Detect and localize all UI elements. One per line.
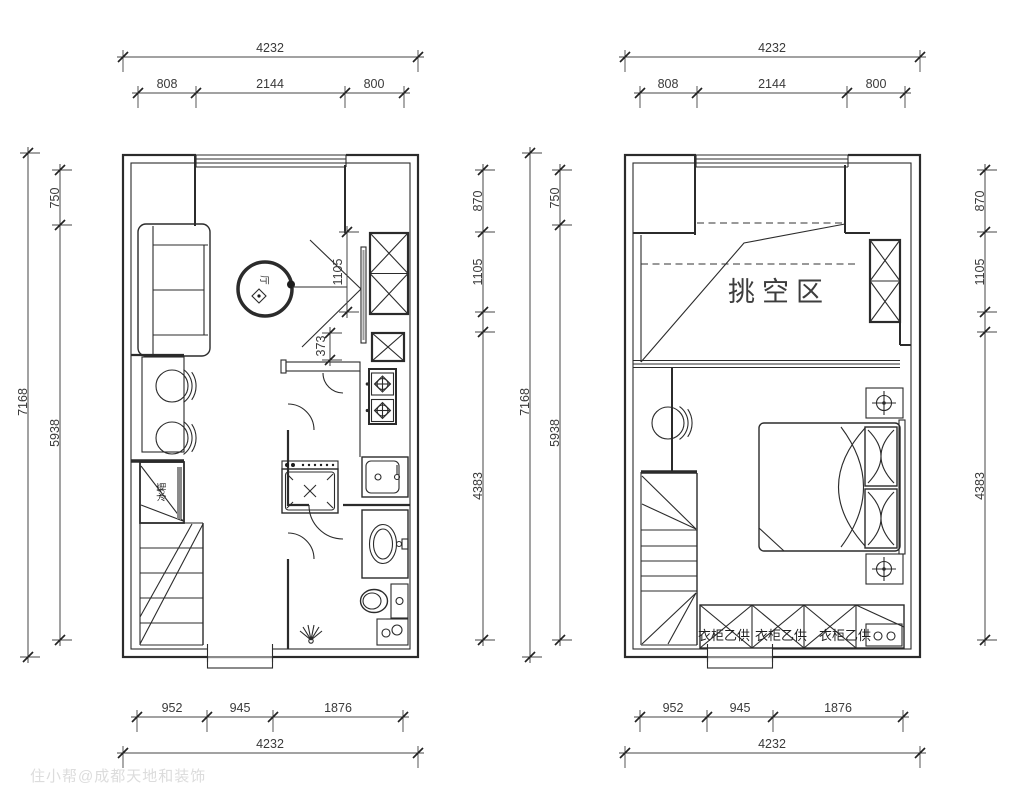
dim-seg: 870 (471, 191, 485, 212)
dim-seg: 1105 (471, 259, 485, 286)
void-area-label: 挑空区 (728, 277, 830, 307)
dim-seg: 1876 (324, 701, 352, 715)
washing-machine-icon (282, 461, 338, 513)
wardrobe-note: 衣柜乙供 (698, 628, 750, 643)
stair-storage-label: 冰箱 (156, 482, 168, 501)
floor2-cabinet (870, 240, 900, 322)
stove-burner-icon (372, 373, 394, 395)
dim-total-height: 7168 (518, 388, 532, 416)
dim-seg: 952 (162, 701, 183, 715)
dim-seg: 4383 (973, 472, 987, 500)
stool-icon (156, 422, 196, 455)
lamp-icon (872, 557, 896, 581)
void-area: 挑空区 (633, 223, 900, 368)
kitchen-sink-icon (362, 457, 408, 497)
dim-seg: 1876 (824, 701, 852, 715)
dim-seg: 2144 (256, 77, 284, 91)
wardrobe-note: 衣柜乙供 (755, 628, 807, 643)
stove-burner-icon (372, 400, 394, 422)
wardrobe-note: 衣柜乙供 (819, 628, 871, 643)
dim-seg: 5938 (48, 419, 62, 447)
dim-seg: 800 (364, 77, 385, 91)
watermark: 住小帮@成都天地和装饰 (30, 768, 206, 785)
floor2-stairs (641, 472, 697, 645)
dim-closet-height: 1105 (331, 259, 345, 286)
nightstand (866, 554, 903, 584)
bed (759, 420, 905, 554)
dim-seg: 808 (157, 77, 178, 91)
dim-total-width: 4232 (758, 737, 786, 751)
floorplan-canvas: 厅 (0, 0, 1017, 802)
dim-seg: 750 (548, 188, 562, 209)
dim-seg: 945 (730, 701, 751, 715)
dim-seg: 808 (658, 77, 679, 91)
mop-basin-icon (377, 619, 408, 645)
bathroom (300, 510, 408, 645)
dim-seg: 750 (48, 188, 62, 209)
living-room-label: 厅 (258, 275, 269, 285)
dim-seg: 5938 (548, 419, 562, 447)
toilet-icon (361, 584, 409, 618)
dim-total-height: 7168 (16, 388, 30, 416)
nightstand (866, 388, 903, 418)
floor1-window (196, 153, 346, 168)
dimension-chains: 4232 808 2144 800 952 945 1876 4232 7168… (16, 41, 997, 768)
floor2-plan: 挑空区 (625, 153, 920, 669)
floor2-window (696, 153, 848, 168)
dim-seg: 800 (866, 77, 887, 91)
stool-icon (156, 370, 196, 403)
floor1-plan: 厅 (123, 153, 418, 669)
dim-total-width: 4232 (256, 737, 284, 751)
floorplan-drawing: 厅 (0, 0, 1017, 802)
dim-seg: 870 (973, 191, 987, 212)
floor1-interior-dims: 1105 373 (314, 226, 359, 366)
dining-area (142, 357, 196, 454)
dim-seg: 1105 (973, 259, 987, 286)
floor1-walls (123, 153, 418, 669)
dim-gap: 373 (314, 336, 328, 357)
dim-seg: 2144 (758, 77, 786, 91)
dim-seg: 4383 (471, 472, 485, 500)
vanity-sink-icon (362, 510, 408, 578)
floor1-entry-opening (208, 644, 273, 668)
lamp-icon (872, 391, 896, 415)
floor1-stairs: 冰箱 (131, 461, 203, 645)
dim-seg: 952 (663, 701, 684, 715)
dim-total-width: 4232 (758, 41, 786, 55)
sofa (138, 224, 210, 356)
kitchen (281, 360, 408, 497)
wardrobe: 衣柜乙供 衣柜乙供 衣柜乙供 (698, 605, 904, 648)
dim-total-width: 4232 (256, 41, 284, 55)
dim-seg: 945 (230, 701, 251, 715)
floor-drain-icon (300, 625, 322, 643)
